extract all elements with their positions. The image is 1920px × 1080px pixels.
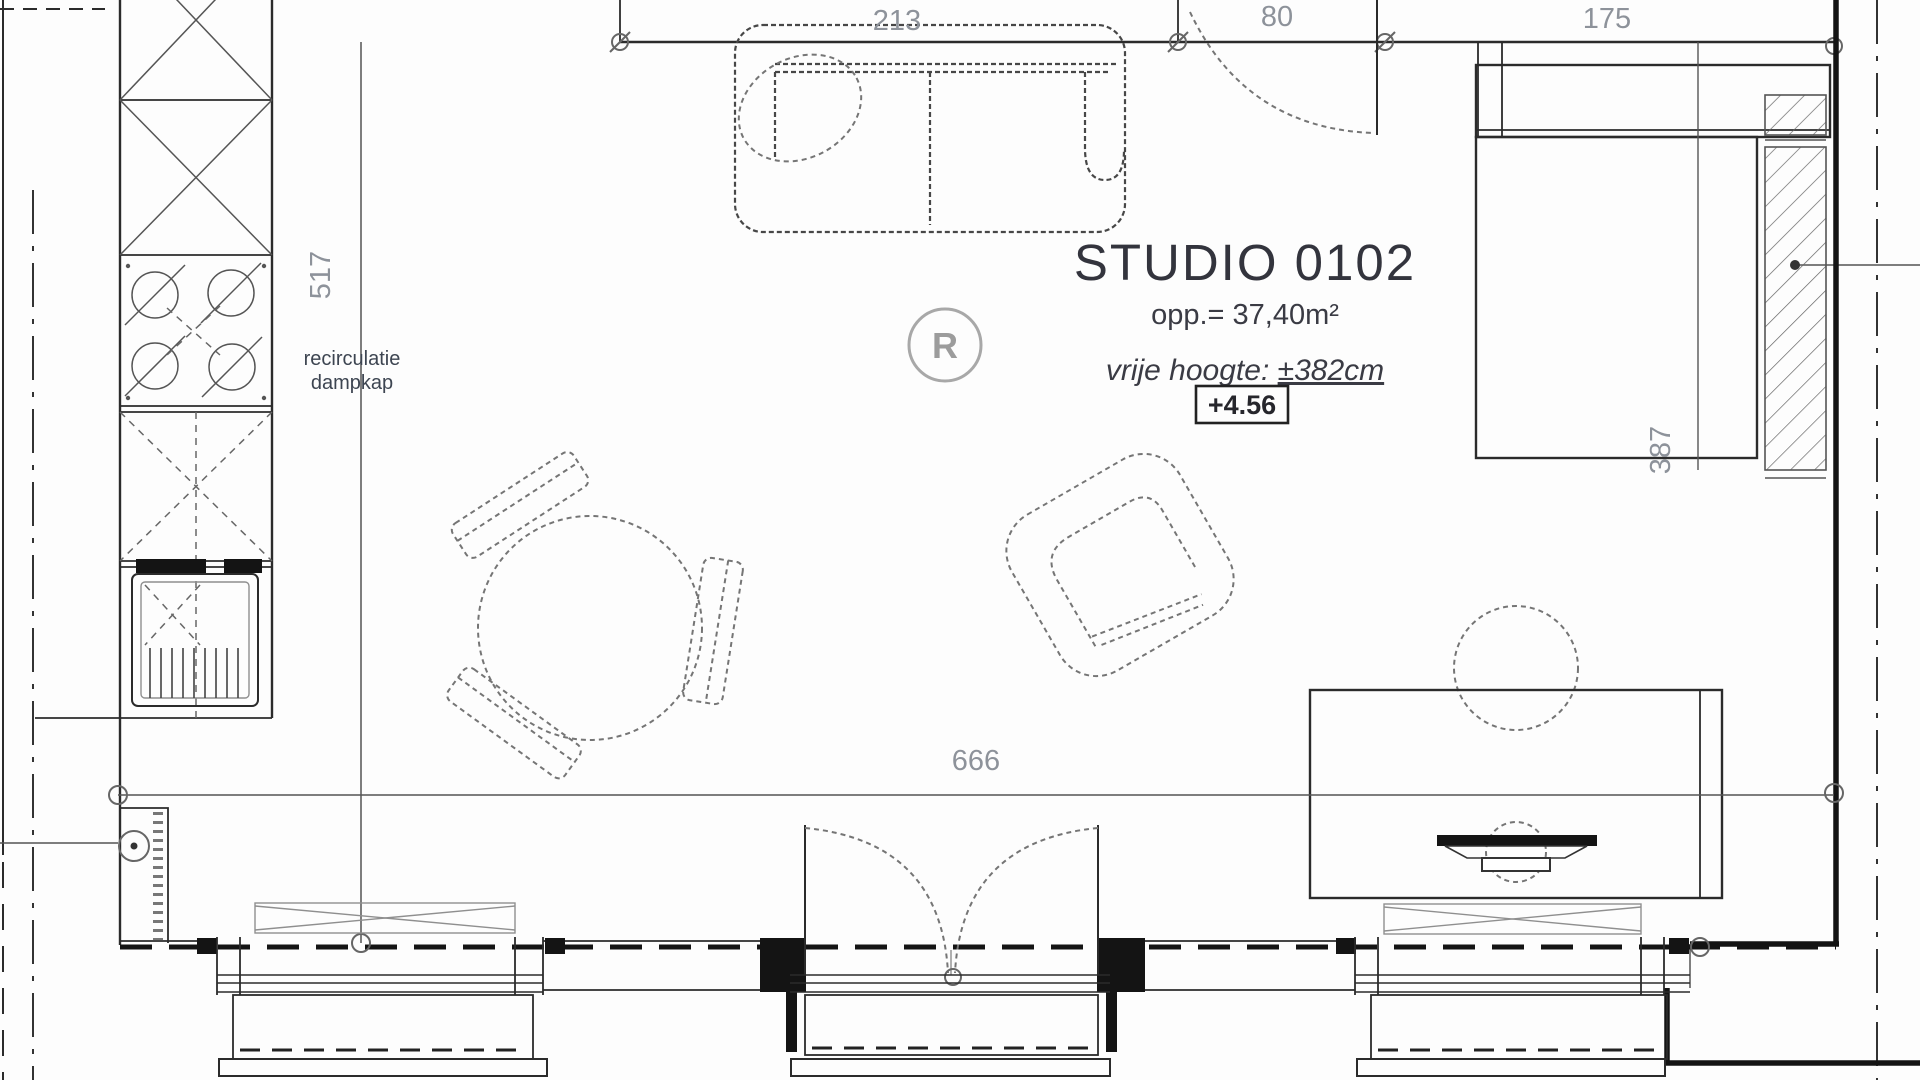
hatched-shaft	[1765, 95, 1826, 478]
cooktop-icon	[125, 263, 266, 400]
dim-bed-wall: 175	[1583, 3, 1631, 35]
dining-table	[478, 516, 702, 740]
dim-kitchen-side: 517	[305, 251, 337, 299]
window-left	[217, 903, 547, 1076]
floor-plan-page: 213 80 175 666 517 387 STUDIO 0102 opp.=…	[0, 0, 1920, 1080]
desk	[1310, 606, 1722, 898]
kitchen-units	[35, 0, 272, 718]
svg-text:R: R	[932, 325, 958, 366]
kitchen-note-line1: recirculatie	[304, 348, 401, 370]
dining-chair	[444, 664, 584, 781]
downpipe-recess	[119, 808, 168, 943]
dining-set	[444, 449, 744, 781]
window-right	[1355, 904, 1690, 1076]
floor-plan-drawing: 213 80 175 666 517 387 STUDIO 0102 opp.=…	[0, 0, 1920, 1080]
room-title: STUDIO 0102	[1074, 234, 1416, 291]
sofa	[720, 25, 1125, 232]
dining-chair	[449, 449, 592, 561]
tall-cabinet-icon	[120, 0, 272, 255]
dim-bed-side: 387	[1645, 426, 1677, 474]
tv-icon	[1437, 822, 1597, 882]
door-swing-arc	[955, 828, 1098, 973]
desk-chair	[1454, 606, 1578, 730]
kitchen-note-line2: dampkap	[311, 372, 393, 394]
dimensions: 213 80 175 666 517 387	[109, 1, 1843, 804]
grid-axes	[0, 0, 1920, 1080]
room-area-label: opp.= 37,40m²	[1151, 299, 1339, 331]
armchair	[991, 439, 1249, 692]
french-door	[790, 825, 1110, 1076]
sink-icon	[132, 559, 262, 706]
smoke-detector-icon: R	[909, 309, 981, 381]
dim-sofa-wall: 213	[873, 5, 921, 37]
room-height-label: vrije hoogte: ±382cm	[1106, 354, 1384, 387]
sofa-cushion	[720, 34, 880, 182]
annotations: STUDIO 0102 opp.= 37,40m² vrije hoogte: …	[304, 234, 1417, 423]
dim-room-width: 666	[952, 745, 1000, 777]
dim-entrance-door: 80	[1261, 1, 1293, 33]
door-swing-arc	[805, 828, 948, 973]
level-marker: +4.56	[1208, 390, 1276, 420]
